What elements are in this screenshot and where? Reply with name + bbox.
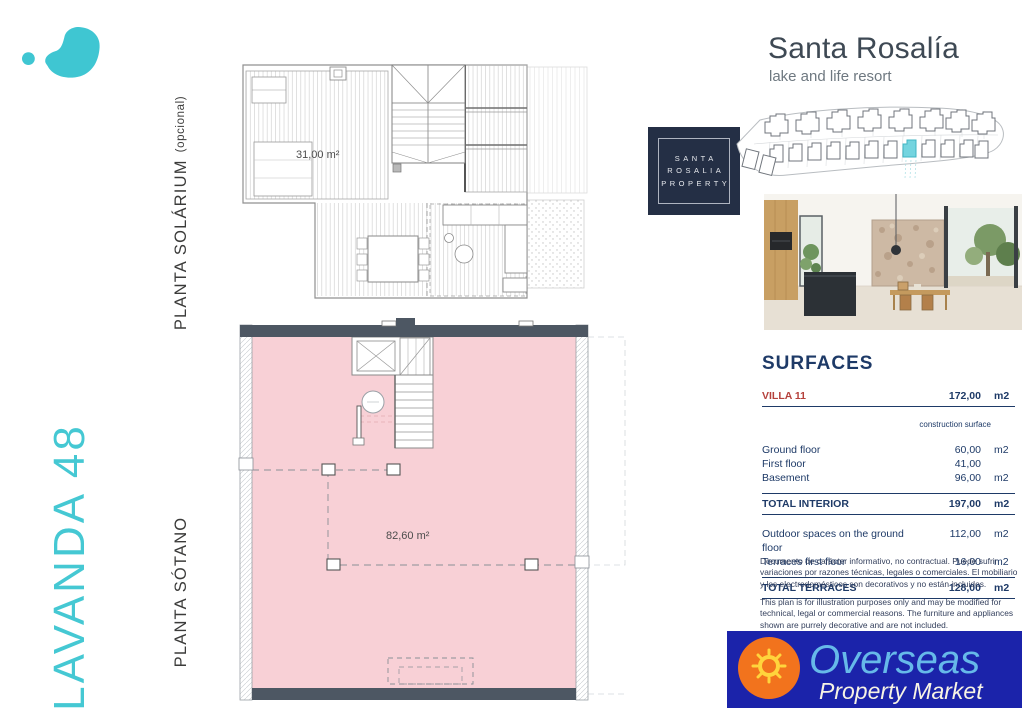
row-label: Ground floor: [762, 443, 925, 457]
property-logo-line3: PROPERTY: [658, 180, 731, 188]
total-interior-row: TOTAL INTERIOR 197,00 m2: [762, 493, 1015, 515]
solarium-area-label: 31,00 m²: [296, 149, 340, 161]
resort-header: Santa Rosalía lake and life resort: [768, 33, 959, 85]
table-row: First floor 41,00: [762, 457, 1015, 471]
row-value: 112,00: [925, 527, 981, 555]
villa-total-row: VILLA 11 172,00 m2: [762, 389, 1015, 407]
construction-surface-header: construction surface: [762, 420, 1015, 429]
lake-blob-icon: [18, 20, 106, 86]
row-value: 96,00: [925, 471, 981, 485]
interior-photo: [764, 194, 1022, 330]
disclaimer-en: This plan is for illustration purposes o…: [760, 597, 1022, 631]
santa-rosalia-property-logo: SANTA ROSALIA PROPERTY: [648, 127, 740, 215]
row-unit: [981, 457, 1015, 471]
basement-area-label: 82,60 m²: [386, 530, 430, 542]
property-logo-frame: SANTA ROSALIA PROPERTY: [658, 138, 730, 204]
label-planta-sotano: PLANTA SÓTANO: [169, 517, 193, 667]
resort-subtitle: lake and life resort: [769, 68, 959, 85]
row-label: Outdoor spaces on the ground floor: [762, 527, 925, 555]
sun-badge: [738, 637, 800, 699]
row-unit: m2: [981, 527, 1015, 555]
row-value: 41,00: [925, 457, 981, 471]
table-row: Ground floor 60,00 m2: [762, 443, 1015, 457]
planta-solarium-text: PLANTA SOLÁRIUM: [172, 159, 191, 330]
row-label: First floor: [762, 457, 925, 471]
basement-floor-plan: 82,60 m²: [236, 318, 628, 710]
row-unit: m2: [981, 443, 1015, 457]
planta-solarium-suffix: (opcional): [175, 96, 187, 153]
villa-name-label: LAVANDA 48: [42, 422, 98, 712]
total-label: TOTAL INTERIOR: [762, 497, 925, 511]
villa-name-text: LAVANDA 48: [45, 423, 95, 711]
row-unit: m2: [981, 471, 1015, 485]
property-market-wordmark: Property Market: [819, 678, 984, 704]
villa-total-unit: m2: [981, 389, 1015, 403]
label-planta-solarium: PLANTA SOLÁRIUM (opcional): [168, 93, 194, 333]
property-logo-line1: SANTA: [671, 155, 716, 163]
brochure-page: PLANTA SOLÁRIUM (opcional) LAVANDA 48 PL…: [0, 0, 1024, 724]
overseas-property-market-logo: Overseas Property Market: [727, 631, 1022, 708]
resort-site-map: [732, 98, 1010, 190]
villa-total-value: 172,00: [925, 389, 981, 403]
surfaces-title: SURFACES: [762, 353, 1015, 375]
table-row: Outdoor spaces on the ground floor 112,0…: [762, 527, 1015, 555]
total-value: 197,00: [925, 497, 981, 511]
row-value: 60,00: [925, 443, 981, 457]
table-row: Basement 96,00 m2: [762, 471, 1015, 485]
property-logo-line2: ROSALIA: [664, 167, 725, 175]
row-label: Basement: [762, 471, 925, 485]
villa-label: VILLA 11: [762, 389, 925, 403]
solarium-floor-plan: 31,00 m²: [240, 52, 604, 310]
disclaimer: Documento de carácter informativo, no co…: [760, 556, 1022, 638]
total-unit: m2: [981, 497, 1015, 511]
planta-sotano-text: PLANTA SÓTANO: [172, 517, 191, 668]
resort-title: Santa Rosalía: [768, 33, 959, 65]
disclaimer-es: Documento de carácter informativo, no co…: [760, 556, 1022, 590]
overseas-wordmark: Overseas: [809, 638, 980, 682]
